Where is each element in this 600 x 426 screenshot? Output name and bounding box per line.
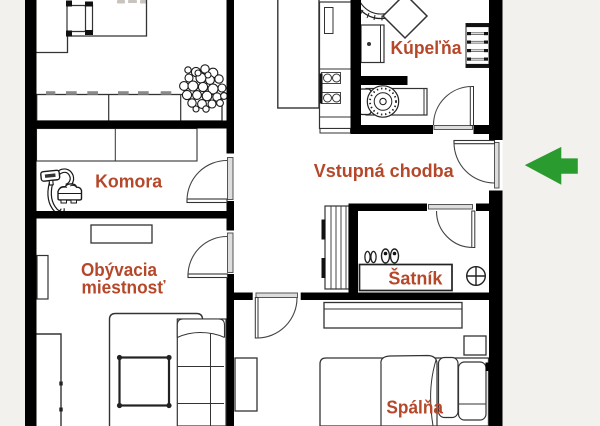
svg-text:Vstupná chodba: Vstupná chodba (314, 161, 455, 181)
svg-text:Spálňa: Spálňa (386, 398, 444, 418)
svg-text:Šatník: Šatník (388, 268, 443, 289)
svg-text:miestnosť: miestnosť (82, 278, 166, 298)
svg-text:Komora: Komora (95, 171, 163, 191)
svg-text:Kúpeľňa: Kúpeľňa (391, 38, 463, 58)
